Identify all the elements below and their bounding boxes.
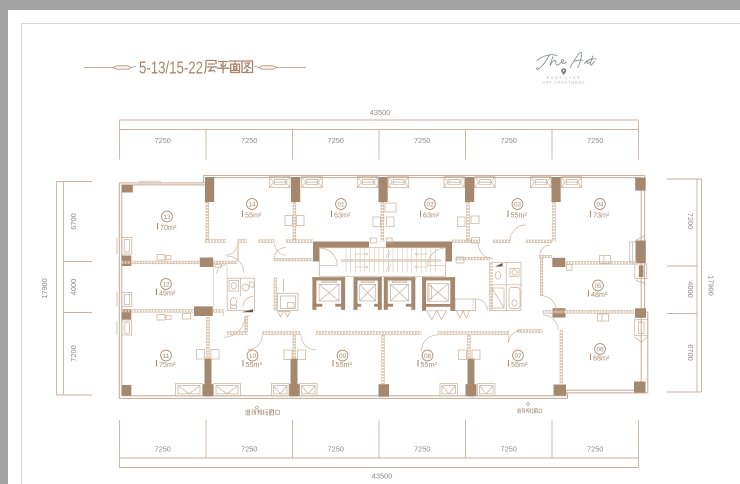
svg-text:55m²: 55m² — [511, 360, 528, 369]
svg-text:5-13/15-22: 5-13/15-22 — [139, 58, 203, 78]
svg-text:14: 14 — [248, 202, 256, 209]
svg-text:70m²: 70m² — [160, 223, 177, 232]
svg-text:01: 01 — [337, 202, 345, 209]
svg-text:7250: 7250 — [587, 136, 603, 145]
svg-text:63m²: 63m² — [423, 210, 440, 219]
svg-text:ART APARTMENT: ART APARTMENT — [543, 80, 586, 85]
svg-text:7250: 7250 — [154, 445, 170, 454]
svg-text:7250: 7250 — [587, 445, 603, 454]
svg-text:68m²: 68m² — [593, 353, 610, 362]
svg-text:7250: 7250 — [327, 136, 343, 145]
svg-text:7250: 7250 — [500, 445, 516, 454]
svg-text:55m²: 55m² — [245, 210, 262, 219]
svg-text:13: 13 — [163, 214, 171, 221]
svg-text:55m²: 55m² — [421, 360, 438, 369]
svg-text:7250: 7250 — [241, 445, 257, 454]
svg-text:7250: 7250 — [241, 136, 257, 145]
svg-text:6700: 6700 — [69, 213, 78, 229]
svg-text:17900: 17900 — [40, 278, 49, 299]
svg-text:75m²: 75m² — [159, 360, 176, 369]
svg-text:02: 02 — [426, 202, 434, 209]
svg-text:7250: 7250 — [154, 136, 170, 145]
svg-text:7250: 7250 — [414, 136, 430, 145]
svg-text:43500: 43500 — [370, 108, 391, 117]
svg-text:7250: 7250 — [414, 445, 430, 454]
svg-text:04: 04 — [596, 202, 604, 209]
svg-text:7200: 7200 — [69, 345, 78, 361]
svg-text:49m²: 49m² — [159, 288, 176, 297]
svg-text:73m²: 73m² — [593, 210, 610, 219]
svg-text:55m²: 55m² — [336, 360, 353, 369]
svg-text:43500: 43500 — [372, 472, 393, 481]
svg-text:55m²: 55m² — [511, 210, 528, 219]
svg-text:17900: 17900 — [707, 275, 716, 296]
svg-text:7200: 7200 — [686, 213, 695, 229]
svg-text:48m²: 48m² — [591, 290, 608, 299]
svg-text:63m²: 63m² — [334, 210, 351, 219]
svg-text:7250: 7250 — [500, 136, 516, 145]
svg-text:4000: 4000 — [686, 281, 695, 297]
svg-text:4000: 4000 — [69, 279, 78, 295]
svg-text:6700: 6700 — [686, 344, 695, 360]
svg-text:03: 03 — [514, 202, 522, 209]
svg-text:55m²: 55m² — [246, 360, 263, 369]
svg-text:7250: 7250 — [327, 445, 343, 454]
